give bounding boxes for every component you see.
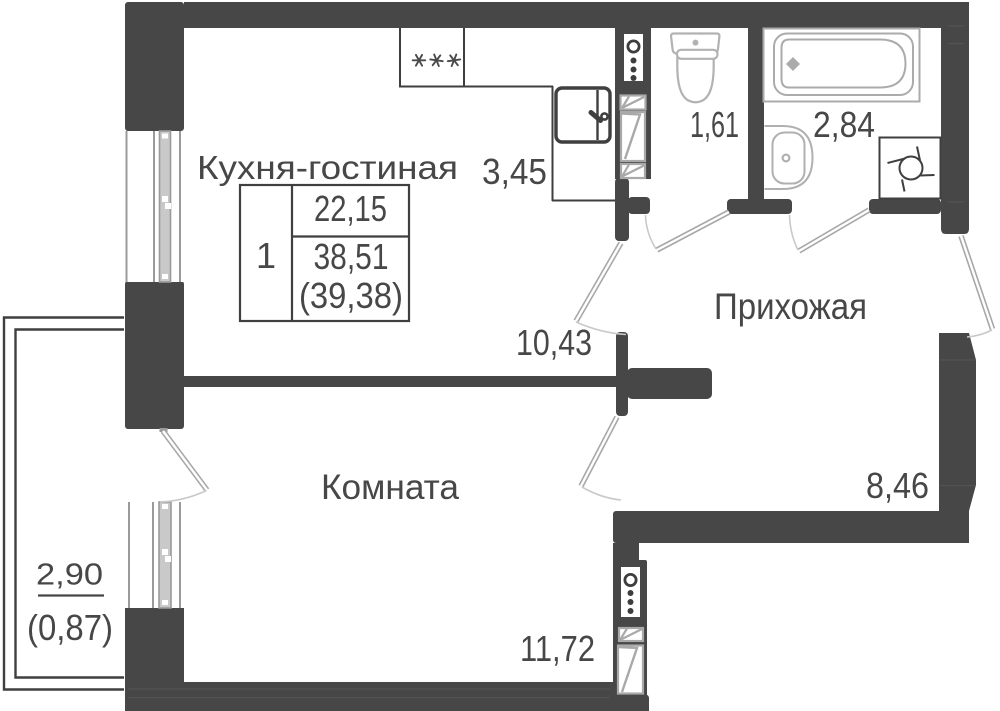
svg-text:38,51: 38,51 <box>314 236 389 277</box>
svg-text:8,46: 8,46 <box>866 465 929 506</box>
svg-text:2,84: 2,84 <box>813 104 875 145</box>
svg-text:3,45: 3,45 <box>482 151 547 192</box>
svg-text:Кухня-гостиная: Кухня-гостиная <box>197 149 458 186</box>
svg-text:Комната: Комната <box>321 468 460 507</box>
svg-text:2,90: 2,90 <box>36 557 103 592</box>
svg-text:11,72: 11,72 <box>520 628 595 669</box>
svg-text:22,15: 22,15 <box>314 188 387 229</box>
svg-text:(39,38): (39,38) <box>299 275 403 316</box>
svg-text:Прихожая: Прихожая <box>714 286 867 327</box>
svg-text:1,61: 1,61 <box>690 104 739 145</box>
svg-text:(0,87): (0,87) <box>27 607 113 648</box>
svg-text:1: 1 <box>256 235 276 276</box>
svg-text:10,43: 10,43 <box>516 322 592 363</box>
